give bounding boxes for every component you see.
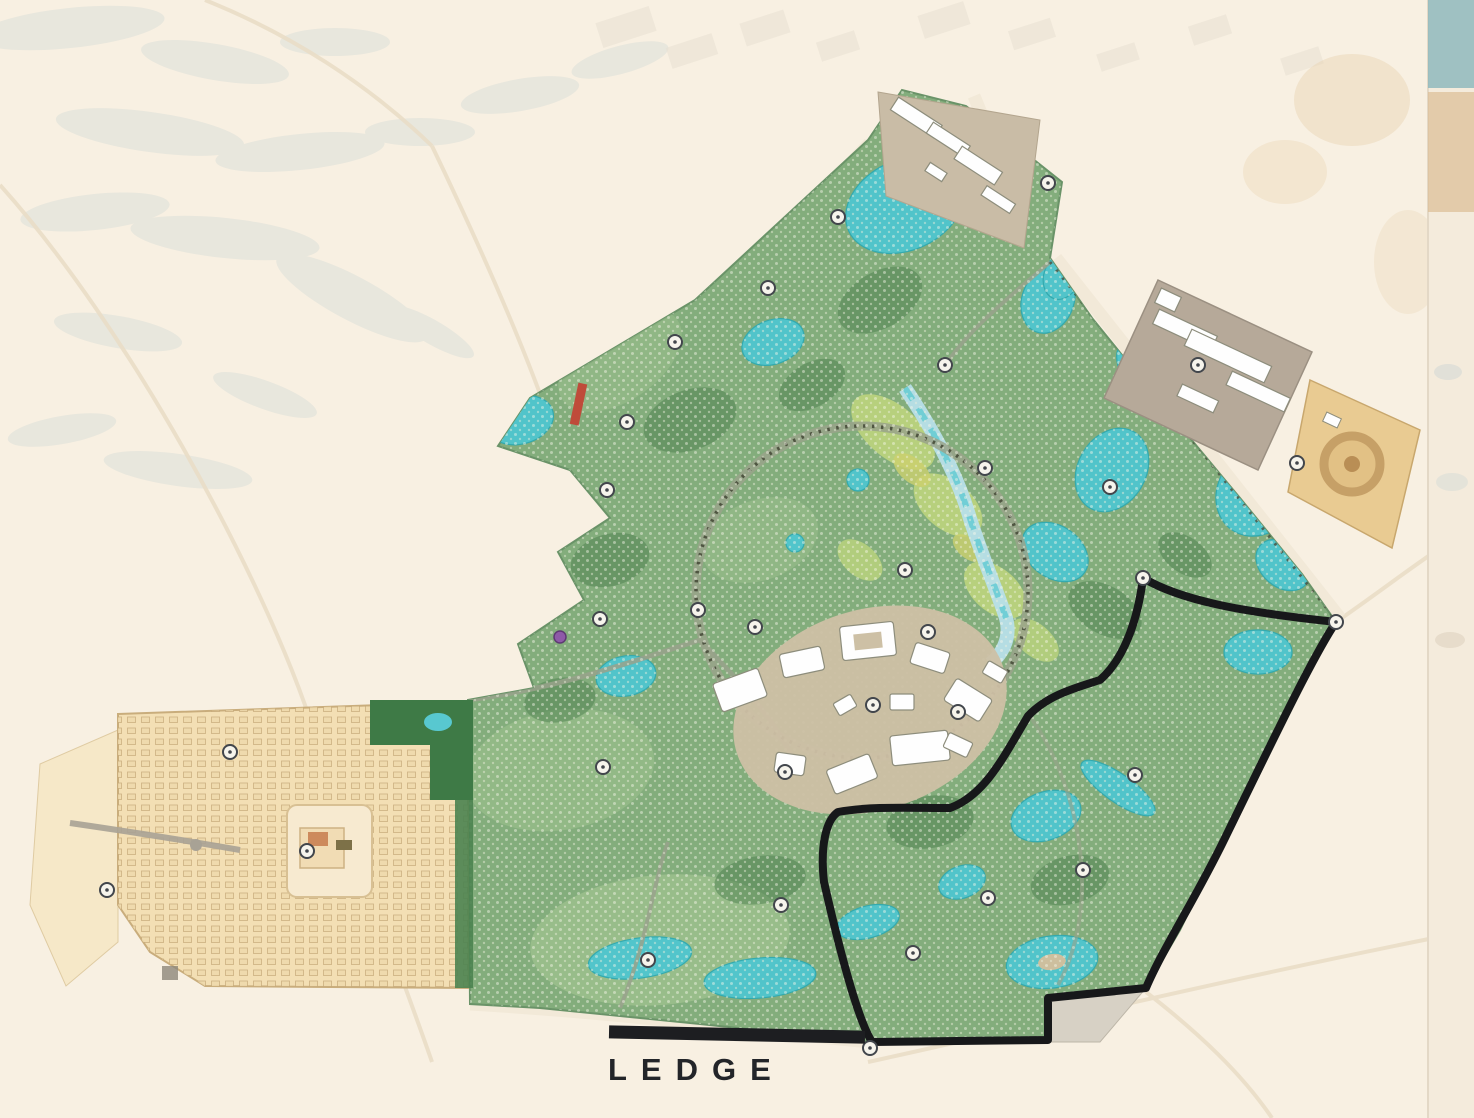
map-marker [1136,571,1150,585]
map-marker [691,603,705,617]
map-marker [761,281,775,295]
purple-dot-mark [554,631,566,643]
map-marker [898,563,912,577]
map-marker [668,335,682,349]
map-marker [921,625,935,639]
map-marker [593,612,607,626]
map-marker [100,883,114,897]
map-marker [600,483,614,497]
map-marker [778,765,792,779]
map-marker [641,953,655,967]
map-marker [1128,768,1142,782]
map-marker [1103,480,1117,494]
map-marker [906,946,920,960]
map-marker [1290,456,1304,470]
map-marker [1191,358,1205,372]
map-marker [831,210,845,224]
map-marker [938,358,952,372]
masterplan-map: LEDGE [0,0,1474,1118]
map-marker [1329,615,1343,629]
map-marker [774,898,788,912]
map-marker [951,705,965,719]
ledge-label: LEDGE [608,1052,928,1088]
map-marker [300,844,314,858]
tan-district [30,700,473,988]
map-marker [866,698,880,712]
map-marker [981,891,995,905]
map-marker [748,620,762,634]
map-marker [1076,863,1090,877]
map-marker [978,461,992,475]
map-marker [596,760,610,774]
map-marker [620,415,634,429]
map-marker [1041,176,1055,190]
masterplan-svg [0,0,1474,1118]
map-marker [223,745,237,759]
adjacent-page-strip [1428,0,1474,1118]
